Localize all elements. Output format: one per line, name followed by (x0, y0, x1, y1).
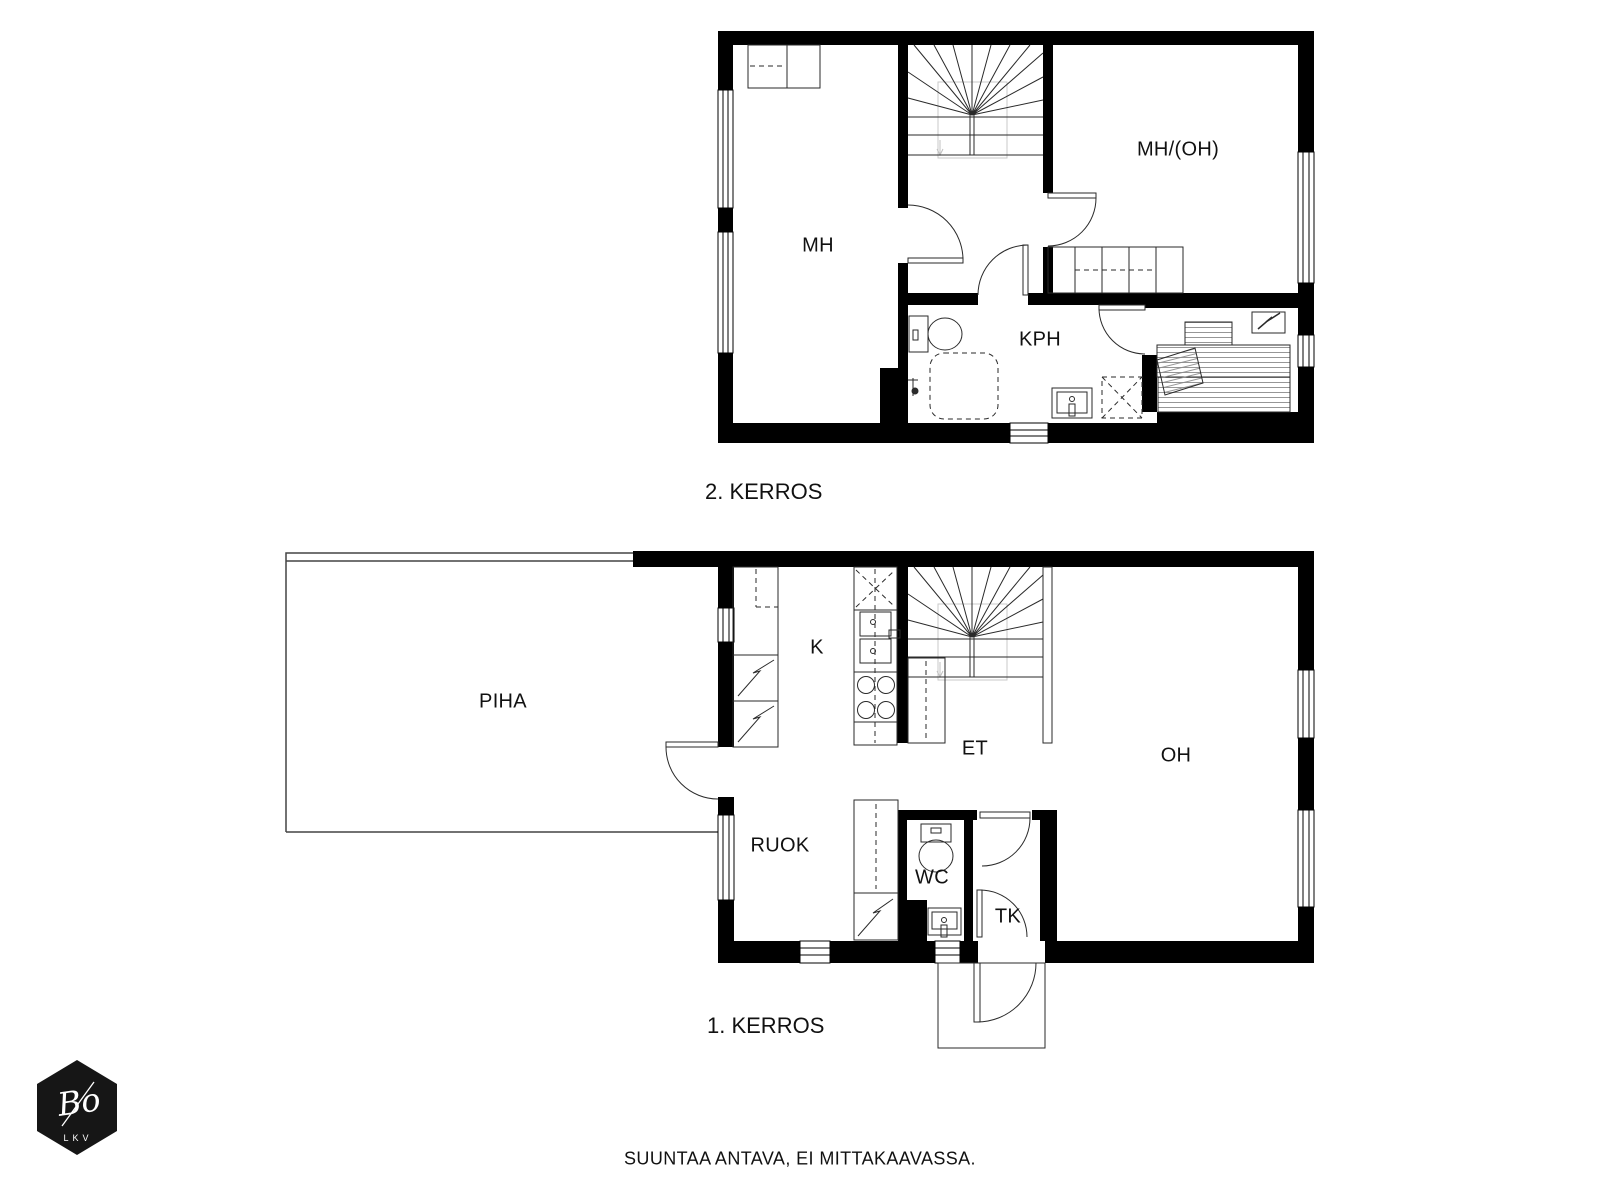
room-label-wc: WC (915, 867, 949, 890)
room-label-mh-oh: MH/(OH) (1137, 139, 1219, 162)
room-label-k: K (810, 637, 824, 660)
tk-inner-door (980, 812, 1030, 818)
floor1-stairs (908, 567, 1052, 743)
entrance-door (974, 963, 980, 1022)
floor1-title: 1. KERROS (707, 1013, 824, 1039)
logo-sub-text: LKV (63, 1133, 92, 1143)
appliance-bolt-icon (858, 899, 893, 936)
room-label-tk: TK (995, 906, 1021, 929)
stair-railing (1043, 567, 1052, 743)
floor1-plan (286, 551, 1314, 1048)
yard-door (666, 742, 718, 747)
fridge-bolt-icon (738, 660, 774, 696)
room-label-mh: MH (802, 235, 834, 258)
logo-brand-text: Bo (55, 1080, 103, 1124)
room-label-et: ET (962, 738, 988, 761)
tk-door (977, 890, 982, 937)
floor2-title: 2. KERROS (705, 479, 822, 505)
disclaimer-text: SUUNTAA ANTAVA, EI MITTAKAAVASSA. (624, 1149, 976, 1170)
floor2-sauna (1157, 312, 1290, 412)
shower-area (930, 353, 998, 419)
room-label-oh: OH (1161, 745, 1192, 768)
room-label-ruok: RUOK (751, 835, 810, 858)
freezer-bolt-icon (738, 706, 774, 742)
floor1-kitchen (733, 567, 900, 940)
floor2-stairs (908, 45, 1043, 158)
sauna-bench (1185, 322, 1232, 345)
room-label-kph: KPH (1019, 329, 1061, 352)
room-label-piha: PIHA (479, 691, 527, 714)
entrance-porch (938, 963, 1045, 1048)
sauna-heater (1252, 312, 1285, 333)
floorplan-page: 2. KERROS MH MH/(OH) KPH 1. KERROS PIHA … (0, 0, 1600, 1200)
toilet-bowl (928, 318, 962, 350)
